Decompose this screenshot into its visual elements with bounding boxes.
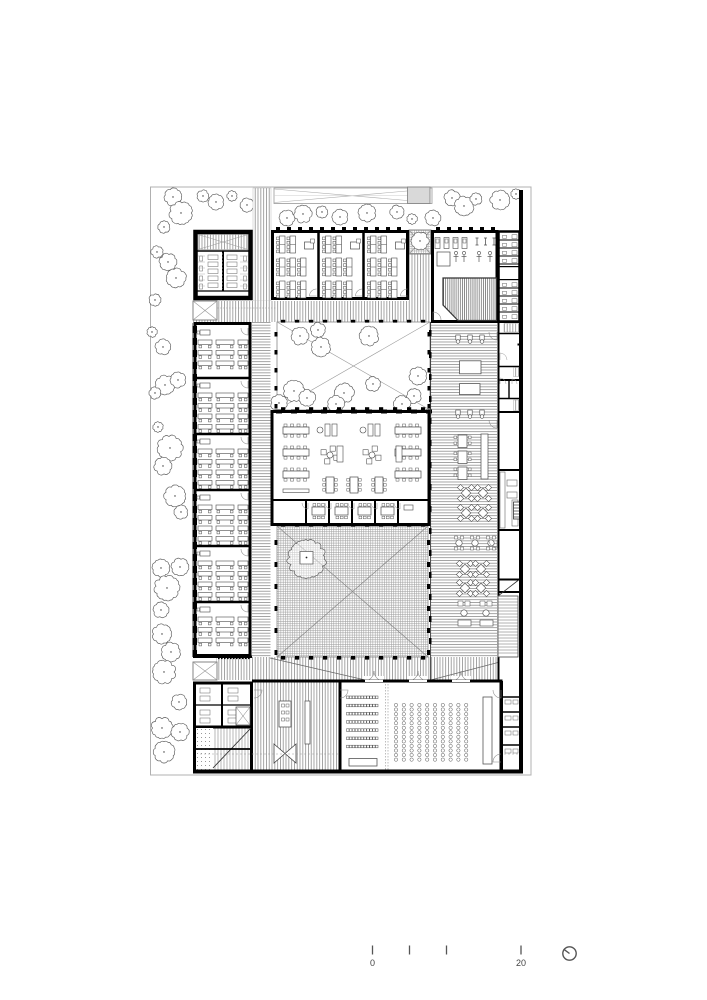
svg-text:20: 20: [516, 958, 526, 968]
svg-text:0: 0: [370, 958, 375, 968]
